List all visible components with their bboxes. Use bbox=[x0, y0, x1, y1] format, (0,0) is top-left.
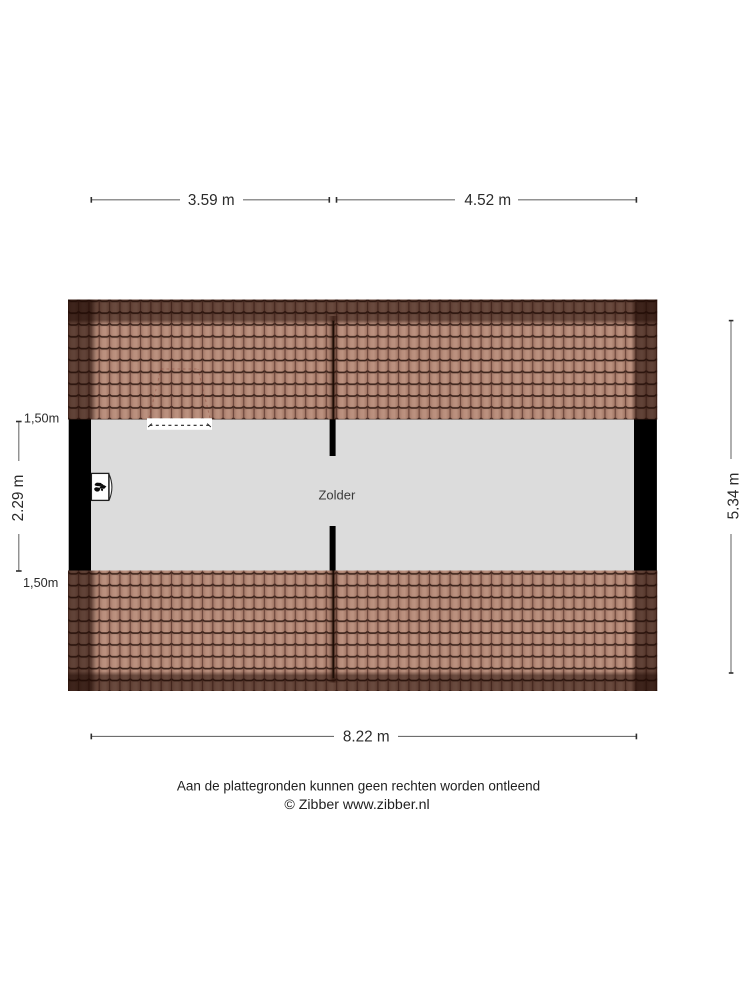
svg-text:3.59 m: 3.59 m bbox=[188, 192, 235, 209]
svg-text:© Zibber www.zibber.nl: © Zibber www.zibber.nl bbox=[284, 797, 429, 813]
svg-text:Zolder: Zolder bbox=[318, 488, 356, 503]
svg-text:1,50m: 1,50m bbox=[24, 412, 59, 426]
svg-text:1,50m: 1,50m bbox=[23, 576, 58, 590]
svg-text:2.29 m: 2.29 m bbox=[10, 475, 27, 522]
svg-text:Aan de plattegronden kunnen ge: Aan de plattegronden kunnen geen rechten… bbox=[177, 779, 540, 794]
svg-text:4.52 m: 4.52 m bbox=[464, 192, 511, 209]
svg-text:5.34 m: 5.34 m bbox=[726, 473, 743, 520]
svg-text:8.22 m: 8.22 m bbox=[343, 728, 390, 745]
